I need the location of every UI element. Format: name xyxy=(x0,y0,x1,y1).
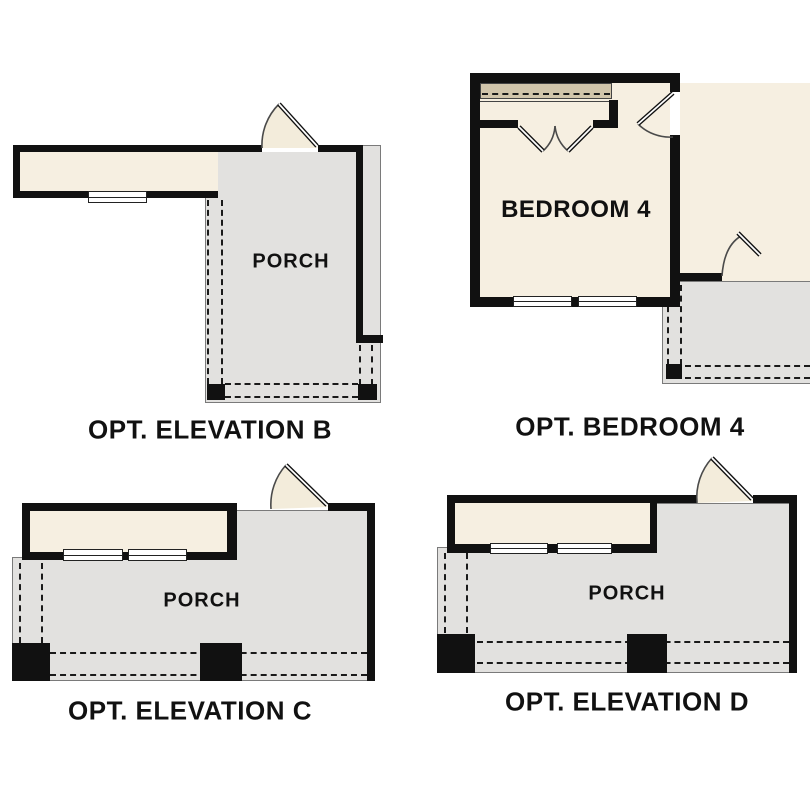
porch-post xyxy=(627,634,667,673)
wall-segment xyxy=(650,495,697,503)
porch-post xyxy=(437,634,475,673)
window-mullion xyxy=(558,548,611,549)
window-mullion xyxy=(491,548,547,549)
porch-area xyxy=(437,548,792,673)
door-threshold xyxy=(697,495,753,503)
porch-edge-dashed-line xyxy=(466,553,468,633)
porch-area xyxy=(657,503,792,548)
room-label: PORCH xyxy=(588,583,665,606)
plan-caption: OPT. ELEVATION D xyxy=(505,687,749,718)
porch-edge-dashed-line xyxy=(444,553,446,633)
plan-elevation-d: PORCH OPT. ELEVATION D xyxy=(0,0,810,810)
house-interior xyxy=(447,495,657,553)
wall-segment xyxy=(789,495,797,673)
window xyxy=(490,543,548,554)
floor-plan-sheet: PORCH OPT. ELEVATION B BEDROOM 4 OPT. BE… xyxy=(0,0,810,810)
window xyxy=(557,543,612,554)
